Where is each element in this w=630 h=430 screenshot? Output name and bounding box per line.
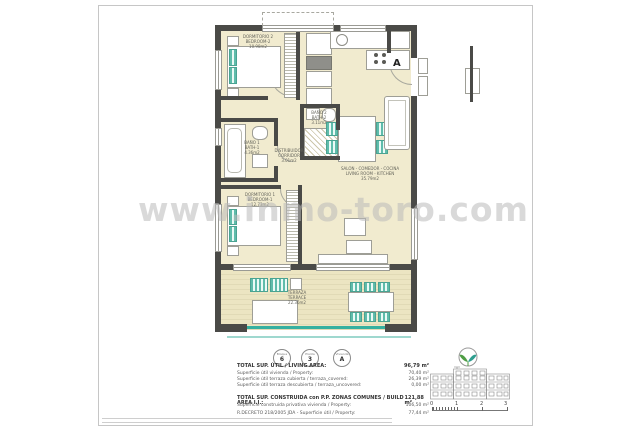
terrace-corner-right [385, 324, 417, 332]
pillow [229, 67, 237, 84]
slider-living-terrace [316, 264, 390, 271]
dining-table [338, 116, 376, 162]
room-area: 10.98m2 [243, 44, 273, 49]
room-area: 22.36m2 [288, 300, 307, 305]
window-bedroom2-top [262, 25, 334, 32]
area-value: 26,39 m² [408, 377, 429, 382]
wall-bath1-bottom [221, 178, 278, 182]
window-bath1-left [215, 128, 222, 146]
watermark-text: www.inmo-toro.com [138, 190, 498, 229]
floor-plan-sheet: A DORMITORIO 2 BEDROOM-2 10.98m2 BAÑO 2 … [0, 0, 630, 430]
terrace-chair [378, 312, 390, 322]
bathtub-inner [227, 128, 242, 173]
area-label: Superficie útil terraza cubierta / terra… [237, 377, 348, 382]
kitchen-cabinet [306, 71, 332, 87]
lounge-chair [270, 278, 288, 292]
toilet [252, 126, 268, 140]
legal-disclaimer-text [102, 418, 392, 425]
wall-terrace-right [411, 270, 417, 332]
bath-sink [252, 154, 268, 168]
kitchen-island [366, 50, 410, 70]
area-value: 106,50 m² [406, 403, 429, 408]
burner-icon [382, 60, 386, 64]
room-area: 3.01m2 [274, 158, 303, 163]
side-table [290, 278, 302, 290]
scale-tick [482, 407, 483, 411]
tv-bench [318, 254, 388, 264]
utility-cabinet [418, 76, 428, 96]
sink-icon [336, 34, 348, 46]
terrace-outer-rail [227, 336, 411, 338]
window-kitchen-top [340, 25, 386, 32]
wall-terrace-left [215, 270, 221, 332]
badge-value: A [334, 356, 350, 363]
wall-bath1-right-a [274, 118, 278, 146]
scale-tick [457, 407, 458, 411]
burner-icon [374, 60, 378, 64]
window-bedroom2-left [215, 50, 222, 90]
section-marker-line [470, 46, 473, 102]
area-label: Superficie construida privativa vivienda… [237, 403, 351, 408]
wall-bath2-right [336, 104, 340, 130]
entrance-label: A [393, 58, 401, 69]
wall-entry-stub [387, 31, 391, 53]
wall-bath2-top [300, 104, 340, 108]
burner-icon [382, 53, 386, 57]
building-elevation-sketch [430, 366, 510, 400]
scale-tick [507, 407, 508, 411]
room-label-bath1: BAÑO 1 BATH-1 4.36m2 [244, 140, 259, 155]
areas-line: R.DECRETO 218/2005 JDA - Superficie útil… [237, 411, 429, 416]
pillow [229, 49, 237, 66]
wall-bedroom2-bottom [215, 96, 268, 100]
room-label-bedroom2: DORMITORIO 2 BEDROOM-2 10.98m2 [243, 34, 273, 49]
slider-bedroom1-terrace [233, 264, 291, 271]
area-label: Superficie útil terraza descubierta / te… [237, 383, 361, 388]
terrace-dining-table [348, 292, 394, 312]
terrace-chair [364, 312, 376, 322]
room-label-bath2: BAÑO 2 BATH-2 3.11m2 [311, 110, 326, 125]
room-area: 4.36m2 [244, 150, 259, 155]
area-label: R.DECRETO 218/2005 JDA - Superficie útil… [237, 411, 355, 416]
terrace-chair [350, 282, 362, 292]
areas-line: Superficie útil terraza descubierta / te… [237, 383, 429, 388]
coffee-table [346, 240, 372, 254]
utility-cabinet [418, 58, 428, 74]
areas-line: Superficie útil vivienda / Property: 70,… [237, 371, 429, 376]
wall-right-upper [411, 25, 417, 58]
room-area: 3.11m2 [311, 120, 326, 125]
room-label-corridor: DISTRIBUIDOR CORRIDOR 3.01m2 [274, 148, 303, 163]
terrace-chair [378, 282, 390, 292]
dining-chair [326, 140, 338, 154]
area-value: 0,00 m² [411, 383, 429, 388]
burner-icon [374, 53, 378, 57]
area-value: 70,40 m² [408, 371, 429, 376]
areas-line: TOTAL SUP. ÚTIL / LIVING AREA: 96,79 m² [237, 364, 429, 369]
wall-bedroom1-top [221, 185, 281, 189]
area-label: Superficie útil vivienda / Property: [237, 371, 313, 376]
badge-value: 6 [274, 356, 290, 363]
terrace-balustrade [247, 326, 385, 329]
scale-bar-comb [433, 407, 457, 410]
oven [306, 56, 332, 70]
terrace-chair [350, 312, 362, 322]
area-value: 77,44 m² [408, 411, 429, 416]
sofa-cushions [388, 100, 406, 146]
nightstand [227, 246, 239, 256]
badge-value: 3 [302, 356, 318, 363]
areas-line: Superficie construida privativa vivienda… [237, 403, 429, 408]
lounge-chair [250, 278, 268, 292]
terrace-corner-left [215, 324, 247, 332]
room-area: 35.79m2 [341, 176, 399, 181]
room-label-living: SALON - COMEDOR - COCINA LIVING ROOM - K… [341, 166, 399, 181]
areas-line: Superficie útil terraza cubierta / terra… [237, 377, 429, 382]
wall-bath1-top [221, 118, 278, 122]
terrace-chair [364, 282, 376, 292]
overhead-projection-dashed [262, 12, 334, 26]
wall-bath2-bottom [300, 156, 340, 160]
fridge [306, 33, 332, 55]
nightstand [227, 36, 239, 46]
area-label: TOTAL SUP. ÚTIL / LIVING AREA: [237, 364, 326, 369]
area-value: 96,79 m² [404, 364, 429, 369]
room-label-terrace: TERRAZA TERRACE 22.36m2 [288, 290, 307, 305]
wall-bedroom2-right [296, 31, 300, 100]
scale-bar-line [432, 410, 508, 411]
